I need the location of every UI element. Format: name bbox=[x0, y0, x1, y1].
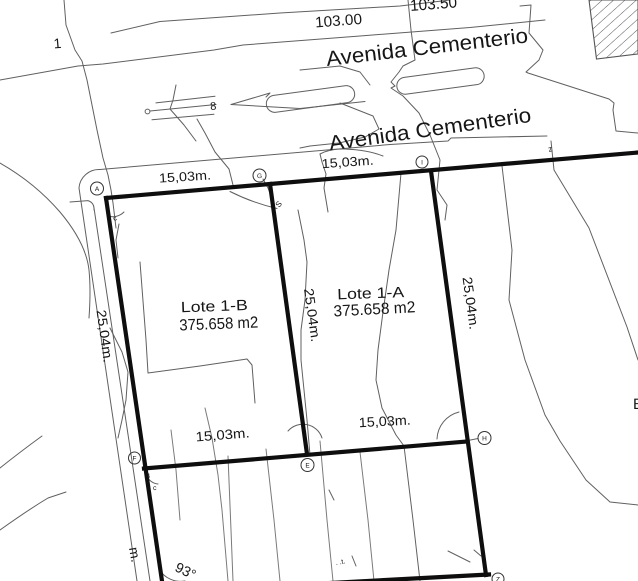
svg-text:m.: m. bbox=[126, 546, 143, 563]
svg-text:I: I bbox=[421, 160, 423, 167]
svg-text:15,03m.: 15,03m. bbox=[358, 412, 411, 430]
svg-text:Z: Z bbox=[496, 577, 500, 581]
svg-text:c: c bbox=[153, 485, 157, 492]
svg-text:375.658 m2: 375.658 m2 bbox=[179, 314, 259, 334]
svg-text:15,03m.: 15,03m. bbox=[159, 167, 212, 185]
svg-text:G: G bbox=[257, 173, 262, 180]
svg-text:Lote 1-B: Lote 1-B bbox=[181, 297, 249, 316]
svg-text:E: E bbox=[305, 463, 310, 470]
svg-text:F: F bbox=[133, 456, 137, 463]
svg-text:1: 1 bbox=[53, 35, 62, 52]
svg-text:8: 8 bbox=[210, 101, 217, 113]
svg-text:B: B bbox=[633, 396, 638, 413]
svg-text:A: A bbox=[95, 186, 100, 193]
svg-text:H: H bbox=[482, 436, 487, 443]
